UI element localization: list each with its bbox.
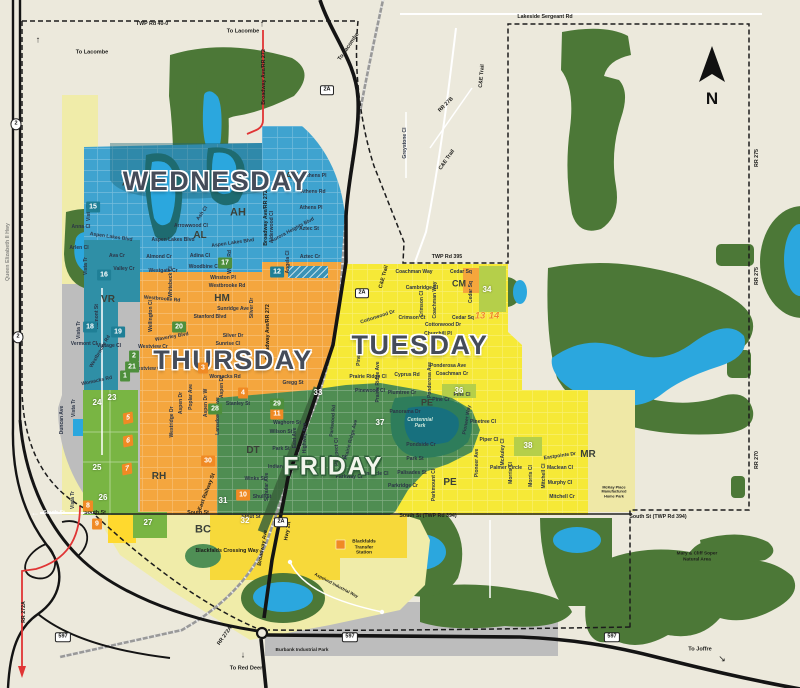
- road-label: Queen Elizabeth II Hwy: [5, 223, 11, 281]
- site-number-badge: 37: [373, 417, 388, 429]
- street-label: Coachman Cr: [436, 372, 469, 378]
- site-number-badge: 5: [123, 411, 133, 424]
- street-label: Arrowwood Cl: [174, 224, 208, 230]
- highway-shield: 2A: [355, 288, 369, 298]
- street-label: Highway Ave: [303, 423, 309, 454]
- street-label: Adina Cl: [190, 254, 210, 260]
- street-label: Crimson Ct: [399, 316, 426, 322]
- street-label: Pinetree Cl: [470, 420, 496, 426]
- zone-name-label: FRIDAY: [283, 452, 383, 482]
- road-label: C&E Trail: [438, 149, 457, 172]
- road-label: South St (TWP Rd 394): [399, 513, 456, 519]
- street-label: Vista Tr: [72, 399, 78, 417]
- highway-shield: 2A: [274, 517, 288, 527]
- site-number-badge: 20: [172, 322, 186, 333]
- street-label: Palisades St: [397, 471, 426, 477]
- site-number-badge: 34: [480, 284, 495, 296]
- direction-label: To Lacombe: [227, 29, 260, 36]
- street-label: Waghorn St: [273, 421, 301, 427]
- street-label: Pinewood Cl: [355, 389, 385, 395]
- poi-label: Blackfalds Transfer Station: [352, 539, 375, 556]
- street-label: Vintage Cl: [97, 344, 121, 350]
- direction-arrow-icon: ↓: [20, 667, 25, 678]
- street-label: Cottonwood Dr: [360, 310, 396, 327]
- site-number-badge: 10: [236, 490, 250, 501]
- street-label: Morris Cl: [529, 465, 535, 487]
- street-label: Mitchell Cr: [549, 495, 575, 501]
- site-number-badge: 16: [97, 270, 111, 281]
- direction-label: To Red Deer: [230, 666, 263, 673]
- street-label: Westbrooke Rd: [89, 335, 112, 370]
- street-label: Winston Pl: [210, 276, 236, 282]
- road-label: Lakeside Sergeant Rd: [517, 14, 572, 20]
- road-label: RR 275: [754, 149, 760, 167]
- street-label: Murphy Cl: [548, 481, 572, 487]
- direction-label: To Lacombe: [337, 32, 361, 62]
- direction-arrow-icon: ↘: [718, 654, 726, 665]
- district-code-label: BC: [195, 524, 211, 537]
- street-label: Vermont Cl: [71, 342, 97, 348]
- site-number-badge: 19: [111, 327, 125, 338]
- street-label: Cedar Sq: [450, 270, 472, 276]
- site-number-badge: 31: [216, 495, 231, 507]
- site-number-badge: 27: [141, 517, 156, 529]
- street-label: Vista Tr: [84, 257, 90, 275]
- street-label: Aspen Lakes Blvd: [211, 238, 254, 250]
- street-label: Cottonwood Dr: [425, 323, 461, 329]
- site-number-badge: 11: [270, 409, 283, 420]
- road-label: South St: [43, 510, 65, 516]
- road-label: Blackfalds Crossing Way: [195, 548, 258, 554]
- street-label: Pioneer Ave: [475, 449, 481, 478]
- road-label: South St (TWP Rd 394): [629, 514, 686, 520]
- highway-shield: 2: [10, 118, 21, 130]
- street-label: Waverley Blvd: [155, 332, 190, 344]
- site-number-badge: 17: [218, 258, 232, 269]
- road-label: TWP Rd 40-0: [136, 21, 168, 27]
- site-number-badge: 9: [92, 519, 102, 530]
- road-label: East Railway St: [197, 473, 217, 512]
- site-number-badge: 18: [83, 322, 97, 333]
- zone-name-label: WEDNESDAY: [123, 166, 310, 198]
- street-label: Wellington Cl: [149, 300, 155, 332]
- street-label: Silver Dr: [223, 334, 244, 340]
- site-number-badge: 28: [208, 404, 222, 415]
- street-label: Plumtree Cr: [388, 391, 416, 397]
- street-label: Parkmount Cl: [432, 469, 438, 502]
- site-number-badge: 23: [105, 392, 120, 404]
- direction-label: To Lacombe: [76, 50, 109, 57]
- street-label: Crimson Cl: [420, 291, 426, 318]
- street-label: Vista Tr: [77, 321, 83, 339]
- street-label: Ava Cr: [109, 254, 125, 260]
- highway-shield: 2: [12, 331, 23, 343]
- street-label: Arlen Cl: [69, 246, 88, 252]
- street-label: Cedar Sq: [469, 281, 475, 303]
- poi-label: Burbank Industrial Park: [276, 647, 329, 653]
- site-number-badge: 21: [125, 362, 139, 373]
- direction-arrow-icon: ↑: [36, 35, 41, 46]
- highway-shield: 597: [55, 632, 71, 642]
- road-label: RR 272A: [216, 625, 234, 646]
- street-label: Panorama Dr: [389, 410, 420, 416]
- street-label: Piper Cl: [480, 438, 499, 444]
- street-label: Aztec St: [299, 227, 319, 233]
- street-label: Poplar Ave: [189, 384, 195, 410]
- street-label: Palmer Circle: [490, 466, 522, 472]
- street-label: Coachman Way: [395, 270, 432, 276]
- site-number-badge: 8: [83, 501, 93, 512]
- site-number-badge: 26: [96, 492, 111, 504]
- site-number-badge: 24: [90, 397, 105, 409]
- district-code-label: PE: [443, 477, 456, 489]
- road-label: Broadway Ave: [257, 530, 269, 567]
- map-labels-layer: TWP Rd 40-0Lakeside Sergeant RdTWP Rd 39…: [0, 0, 800, 688]
- district-code-label: HM: [214, 293, 230, 305]
- site-number-badge: 7: [122, 462, 132, 475]
- street-label: Stanley St: [226, 402, 250, 408]
- site-number-badge: 33: [311, 387, 326, 399]
- street-label: Ponderosa Ave: [428, 362, 434, 398]
- street-label: Womacks Rd: [81, 376, 113, 388]
- compass-north-label: N: [695, 89, 729, 109]
- zone-name-label: TUESDAY: [351, 330, 488, 362]
- district-code-label: PE: [421, 398, 433, 409]
- street-label: McAuley Cl: [501, 439, 507, 466]
- district-code-label: RH: [152, 471, 166, 483]
- road-label: RR 27B: [437, 96, 455, 114]
- direction-arrow-icon: ↓: [241, 650, 246, 661]
- street-label: Cyprus Rd: [394, 373, 419, 379]
- road-label: TWP Rd 395: [432, 254, 463, 260]
- street-label: Aztec Cr: [300, 255, 320, 261]
- street-label: East Ave: [293, 428, 299, 449]
- street-label: Gregg St: [282, 381, 303, 387]
- site-number-badge: 29: [270, 399, 284, 410]
- street-label: Cedar Sq: [452, 316, 474, 322]
- street-label: Silver Dr: [250, 298, 256, 319]
- street-label: Vista Tr: [71, 491, 77, 509]
- street-label: Schular Ave: [265, 473, 271, 502]
- highway-shield: 597: [604, 632, 620, 642]
- site-number-badge: 12: [270, 267, 284, 278]
- site-number-badge: 15: [86, 202, 100, 213]
- street-label: Ash Cl: [196, 206, 210, 222]
- poi-label: Centennial Park: [407, 418, 433, 430]
- street-label: Aspen Lakes Blvd: [89, 232, 132, 244]
- street-label: Almond Cr: [146, 255, 172, 261]
- site-number-badge: 32: [238, 515, 253, 527]
- street-label: Park St: [406, 457, 423, 463]
- street-label: Morris Cl: [509, 462, 515, 484]
- highway-shield: 597: [342, 632, 358, 642]
- site-number-badge: 36: [452, 385, 467, 397]
- street-label: Westridge Dr: [170, 406, 176, 437]
- street-label: Pine Cr: [432, 398, 450, 404]
- direction-arrow-icon: ↑: [260, 19, 265, 30]
- district-code-label: VR: [101, 294, 115, 306]
- street-label: Athens Pl: [299, 206, 322, 212]
- street-label: Sunridge Ave: [217, 307, 249, 313]
- street-label: Stanford Blvd: [194, 315, 227, 321]
- poi-label: Aspelund Industrial Way: [313, 572, 358, 599]
- district-code-label: DT: [246, 445, 259, 457]
- street-label: Westbrooke Rd: [209, 284, 246, 290]
- street-label: Prairie Ridge Ave: [376, 361, 382, 402]
- site-number-badge: 38: [521, 440, 536, 452]
- compass-rose: N: [695, 44, 729, 104]
- street-label: Greystone Cl: [403, 127, 409, 158]
- district-code-label: AL: [193, 230, 206, 242]
- street-label: Pondside Cr: [406, 443, 435, 449]
- road-label: South St: [187, 510, 209, 516]
- north-arrow-icon: [695, 44, 729, 86]
- district-code-label: MR: [580, 449, 596, 461]
- road-label: C&E Trail: [478, 64, 486, 88]
- site-number-badge: 4: [238, 388, 248, 399]
- blackfalds-zone-map: TWP Rd 40-0Lakeside Sergeant RdTWP Rd 39…: [0, 0, 800, 688]
- zone-name-label: THURSDAY: [153, 345, 313, 377]
- road-label: Broadway Ave/RR 272: [261, 49, 267, 105]
- street-label: Maclean Cl: [547, 466, 573, 472]
- street-label: Wilson St: [270, 430, 293, 436]
- poi-label: Mary & Cliff Soper Natural Area: [677, 550, 718, 561]
- poi-label: McKay Place Manufactured Home Park: [602, 485, 627, 498]
- street-label: Aspen Lakes Blvd: [151, 238, 194, 244]
- direction-label: To Joffre: [688, 647, 712, 654]
- district-code-label: CM: [452, 279, 466, 290]
- street-label: Whitebeck Cl: [169, 266, 175, 297]
- street-label: Angela Cl: [286, 250, 292, 273]
- highway-shield: 2A: [320, 85, 334, 95]
- road-label: RR 270: [754, 451, 760, 469]
- site-number-badge: 14: [486, 309, 503, 323]
- site-number-badge: 25: [90, 462, 105, 474]
- site-number-badge: 30: [201, 456, 215, 467]
- site-number-badge: 6: [123, 434, 133, 447]
- street-label: Parkwood Rd: [330, 405, 339, 437]
- site-number-badge: 3: [198, 363, 208, 374]
- street-label: Aspen Dr: [179, 392, 185, 414]
- street-label: Eastpointe Dr: [543, 452, 576, 462]
- site-number-badge: 2: [129, 351, 139, 362]
- road-label: C&E Trail: [378, 265, 390, 289]
- road-label: RR 275: [754, 267, 760, 285]
- street-label: Duncan Ave: [60, 406, 66, 435]
- district-code-label: AH: [230, 207, 246, 220]
- direction-arrow-icon: ←: [31, 508, 40, 519]
- street-label: Aspen Dr: [220, 376, 226, 398]
- street-label: Ponderosa Ave: [430, 364, 466, 370]
- street-label: Parkridge Cr: [388, 484, 418, 490]
- street-label: Winks St: [244, 477, 265, 483]
- street-label: Woodbine Cl: [189, 265, 219, 271]
- road-label: RR 272A: [21, 601, 27, 623]
- street-label: Valley Cr: [113, 267, 134, 273]
- street-label: Anna Cl: [72, 225, 91, 231]
